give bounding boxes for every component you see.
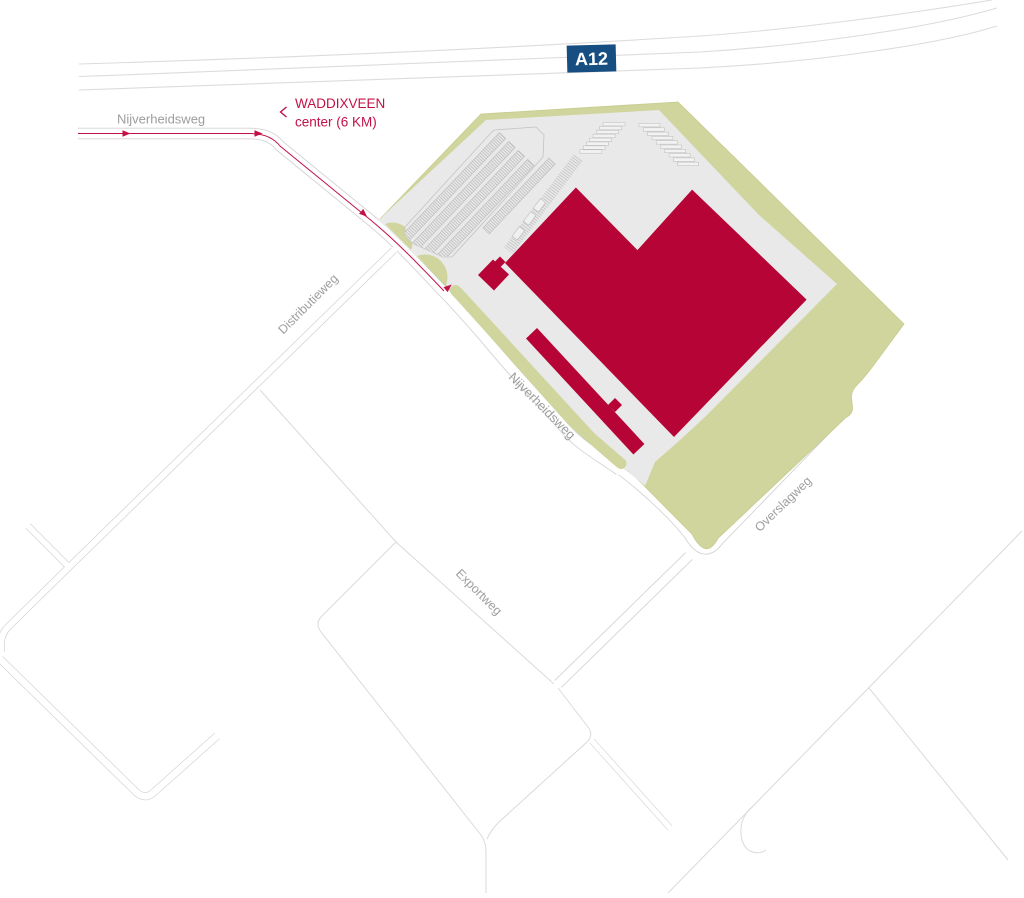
svg-text:A12: A12 [575,49,609,70]
svg-text:WADDIXVEEN: WADDIXVEEN [295,96,385,111]
svg-text:Nijverheidsweg: Nijverheidsweg [117,112,205,127]
svg-text:center (6 KM): center (6 KM) [295,115,377,130]
